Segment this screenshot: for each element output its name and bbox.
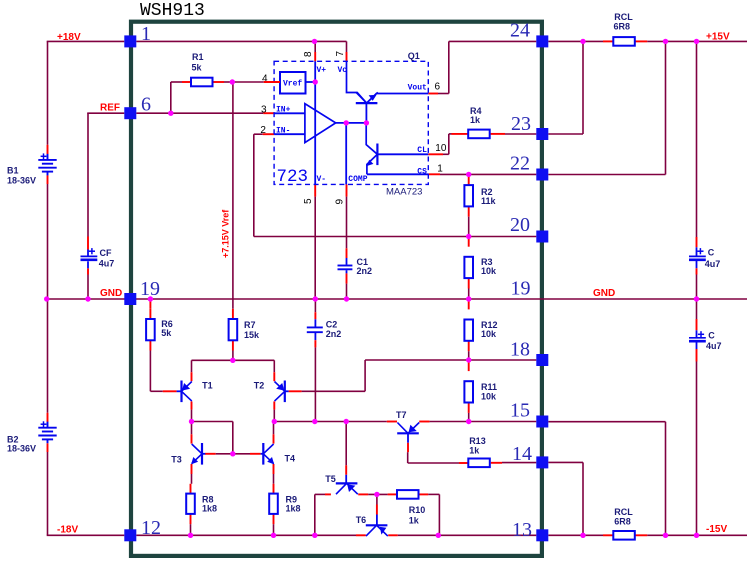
svg-text:23: 23 <box>511 113 531 135</box>
svg-text:REF: REF <box>100 103 120 114</box>
svg-text:T5: T5 <box>325 474 336 484</box>
svg-text:4u7: 4u7 <box>706 341 722 351</box>
svg-text:1k8: 1k8 <box>286 504 301 514</box>
svg-text:10k: 10k <box>481 266 497 276</box>
svg-text:1k: 1k <box>409 515 420 525</box>
svg-text:R10: R10 <box>409 505 426 515</box>
svg-text:MAA723: MAA723 <box>386 186 422 197</box>
svg-text:Q1: Q1 <box>408 51 420 61</box>
svg-text:6: 6 <box>141 93 151 115</box>
svg-text:5: 5 <box>303 198 314 204</box>
svg-text:CL: CL <box>417 146 427 155</box>
svg-text:C: C <box>708 330 715 340</box>
svg-text:4u7: 4u7 <box>705 259 721 269</box>
svg-text:18: 18 <box>510 338 530 360</box>
svg-text:COMP: COMP <box>348 175 367 184</box>
svg-text:6R8: 6R8 <box>614 516 631 526</box>
svg-text:+15V: +15V <box>706 32 730 43</box>
svg-text:10k: 10k <box>481 391 497 401</box>
svg-text:R7: R7 <box>244 320 256 330</box>
svg-text:CS: CS <box>417 167 427 176</box>
svg-text:22: 22 <box>510 153 530 175</box>
svg-text:9: 9 <box>335 199 346 205</box>
svg-text:T2: T2 <box>254 381 265 391</box>
svg-text:6R8: 6R8 <box>614 21 631 31</box>
svg-text:IN+: IN+ <box>276 106 291 115</box>
svg-text:5k: 5k <box>192 63 203 73</box>
svg-text:T7: T7 <box>396 410 407 420</box>
svg-text:8: 8 <box>303 51 314 57</box>
svg-text:6: 6 <box>435 82 441 93</box>
svg-text:7: 7 <box>335 51 346 57</box>
svg-text:2n2: 2n2 <box>326 329 342 339</box>
svg-text:10: 10 <box>435 143 447 154</box>
svg-text:5k: 5k <box>161 328 172 338</box>
svg-text:19: 19 <box>511 278 531 300</box>
svg-text:24: 24 <box>510 20 530 42</box>
svg-text:Vc: Vc <box>338 66 348 75</box>
svg-text:GND: GND <box>593 288 615 299</box>
svg-text:+7.15V Vref: +7.15V Vref <box>221 209 231 258</box>
svg-text:3: 3 <box>261 104 267 115</box>
svg-text:C: C <box>708 247 715 257</box>
svg-text:15: 15 <box>510 400 530 422</box>
svg-text:CF: CF <box>100 248 112 258</box>
svg-text:1k: 1k <box>469 446 480 456</box>
svg-text:1: 1 <box>141 23 151 45</box>
svg-text:2n2: 2n2 <box>357 266 373 276</box>
svg-text:19: 19 <box>140 278 160 300</box>
svg-text:R1: R1 <box>192 52 204 62</box>
svg-text:14: 14 <box>512 443 532 465</box>
svg-text:T4: T4 <box>285 453 296 463</box>
svg-text:V-: V- <box>317 175 327 184</box>
svg-text:-15V: -15V <box>706 524 727 535</box>
svg-text:20: 20 <box>510 214 530 236</box>
svg-text:1: 1 <box>437 163 443 174</box>
svg-text:IN-: IN- <box>276 127 290 136</box>
svg-text:18-36V: 18-36V <box>7 443 36 453</box>
svg-text:4u7: 4u7 <box>99 259 115 269</box>
svg-text:11k: 11k <box>481 196 497 206</box>
svg-text:RCL: RCL <box>614 12 633 22</box>
svg-text:T6: T6 <box>356 515 367 525</box>
svg-text:15k: 15k <box>244 330 260 340</box>
svg-text:V+: V+ <box>317 66 327 75</box>
svg-text:1k8: 1k8 <box>202 504 217 514</box>
svg-text:T1: T1 <box>202 381 213 391</box>
svg-text:T3: T3 <box>171 455 182 465</box>
svg-text:723: 723 <box>277 167 309 187</box>
svg-text:GND: GND <box>100 288 122 299</box>
svg-text:10k: 10k <box>481 329 497 339</box>
svg-text:2: 2 <box>260 125 266 136</box>
svg-text:1k: 1k <box>470 115 481 125</box>
svg-text:Vout: Vout <box>408 84 427 93</box>
svg-text:12: 12 <box>141 517 161 539</box>
svg-text:WSH913: WSH913 <box>140 1 205 21</box>
svg-text:18-36V: 18-36V <box>7 175 36 185</box>
svg-text:Vref: Vref <box>283 80 302 89</box>
svg-text:+18V: +18V <box>57 32 81 43</box>
svg-text:B1: B1 <box>7 165 19 175</box>
svg-text:13: 13 <box>512 519 532 541</box>
svg-text:-18V: -18V <box>57 525 78 536</box>
